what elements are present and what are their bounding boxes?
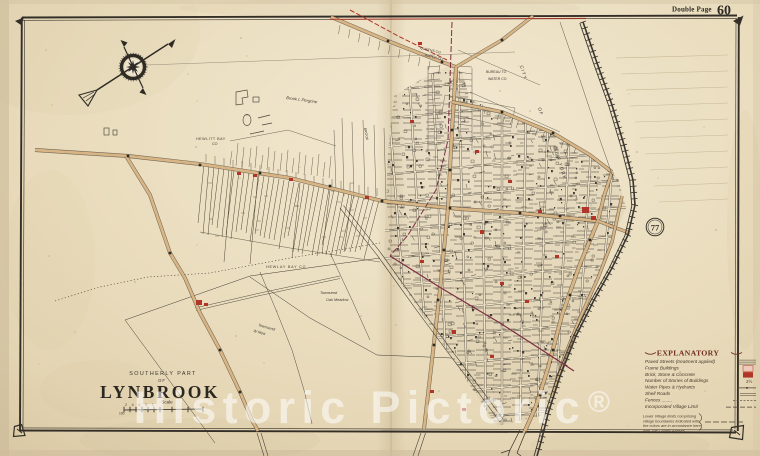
svg-text:Historic Pictoric®: Historic Pictoric® <box>134 382 617 433</box>
svg-text:Frame Buildings: Frame Buildings <box>645 365 680 370</box>
svg-text:Shell Roads: Shell Roads <box>645 391 671 396</box>
svg-text:HEWLAY BAY CO: HEWLAY BAY CO <box>266 265 306 269</box>
svg-text:60: 60 <box>717 4 731 19</box>
svg-text:Townsend: Townsend <box>320 291 338 295</box>
svg-text:Incorporated Village Limit: Incorporated Village Limit <box>645 404 699 409</box>
svg-text:Number of Stories of Buildings: Number of Stories of Buildings <box>645 378 709 383</box>
svg-text:Fences ........: Fences ........ <box>645 397 672 402</box>
svg-text:2½: 2½ <box>746 378 753 384</box>
svg-text:Water Pipes & Hydrants: Water Pipes & Hydrants <box>645 385 696 390</box>
svg-text:77: 77 <box>651 223 660 233</box>
svg-text:CO: CO <box>212 142 218 146</box>
svg-text:Paved Streets (treatment appli: Paved Streets (treatment applied) <box>645 359 716 364</box>
svg-text:BUREAU TO: BUREAU TO <box>486 70 507 74</box>
svg-text:with The County Atlases: with The County Atlases <box>643 428 685 433</box>
svg-text:100: 100 <box>119 412 125 416</box>
svg-text:EXPLANATORY: EXPLANATORY <box>657 349 720 358</box>
svg-text:Double Page: Double Page <box>672 6 712 14</box>
svg-text:Brick, Stone & Concrete: Brick, Stone & Concrete <box>645 372 695 377</box>
svg-text:WATER CO: WATER CO <box>488 77 507 81</box>
svg-text:Oak Meadow: Oak Meadow <box>326 298 349 302</box>
svg-text:HEWLITT BAY: HEWLITT BAY <box>196 137 226 141</box>
svg-text:SOUTHERLY PART: SOUTHERLY PART <box>129 371 196 377</box>
